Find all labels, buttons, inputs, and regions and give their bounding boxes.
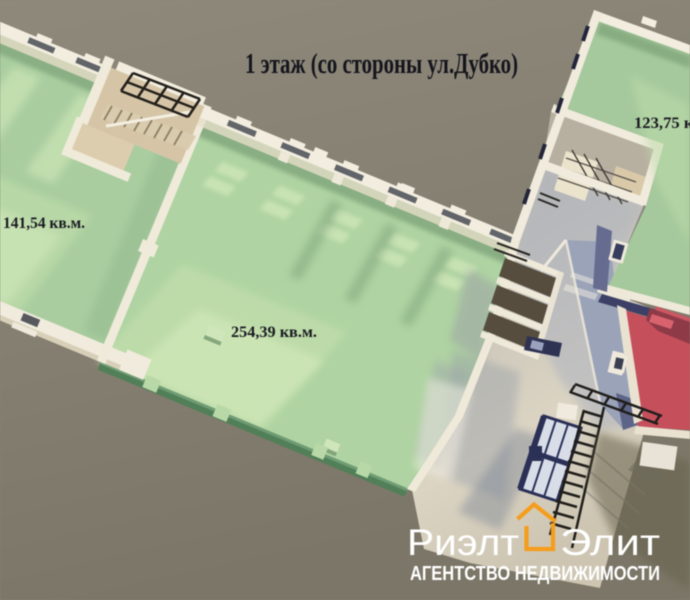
svg-text:123,75 кв.м.: 123,75 кв.м. bbox=[634, 115, 690, 132]
svg-text:141,54 кв.м.: 141,54 кв.м. bbox=[3, 215, 85, 232]
svg-text:254,39 кв.м.: 254,39 кв.м. bbox=[231, 324, 317, 341]
svg-text:АГЕНТСТВО НЕДВИЖИМОСТИ: АГЕНТСТВО НЕДВИЖИМОСТИ bbox=[410, 563, 660, 585]
svg-text:1 этаж (со стороны ул.Дубко): 1 этаж (со стороны ул.Дубко) bbox=[245, 48, 518, 80]
svg-text:Риэлт: Риэлт bbox=[407, 522, 519, 563]
svg-text:Элит: Элит bbox=[560, 522, 660, 563]
